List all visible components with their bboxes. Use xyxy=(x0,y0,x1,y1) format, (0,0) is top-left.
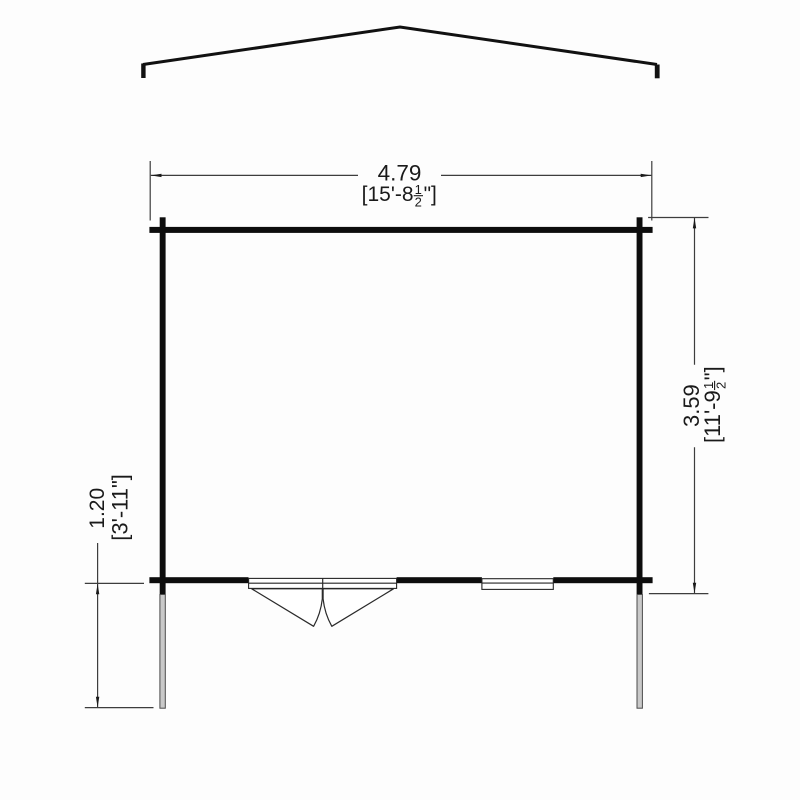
svg-text:1.20: 1.20 xyxy=(86,488,109,529)
svg-text:2: 2 xyxy=(415,195,422,210)
svg-text:[3'-11"]: [3'-11"] xyxy=(108,474,133,541)
svg-text:[11'-9: [11'-9 xyxy=(700,390,725,443)
svg-text:2: 2 xyxy=(713,382,728,389)
svg-text:"]: "] xyxy=(424,183,437,206)
svg-text:"]: "] xyxy=(700,366,725,380)
svg-text:[15'-8: [15'-8 xyxy=(362,183,414,206)
